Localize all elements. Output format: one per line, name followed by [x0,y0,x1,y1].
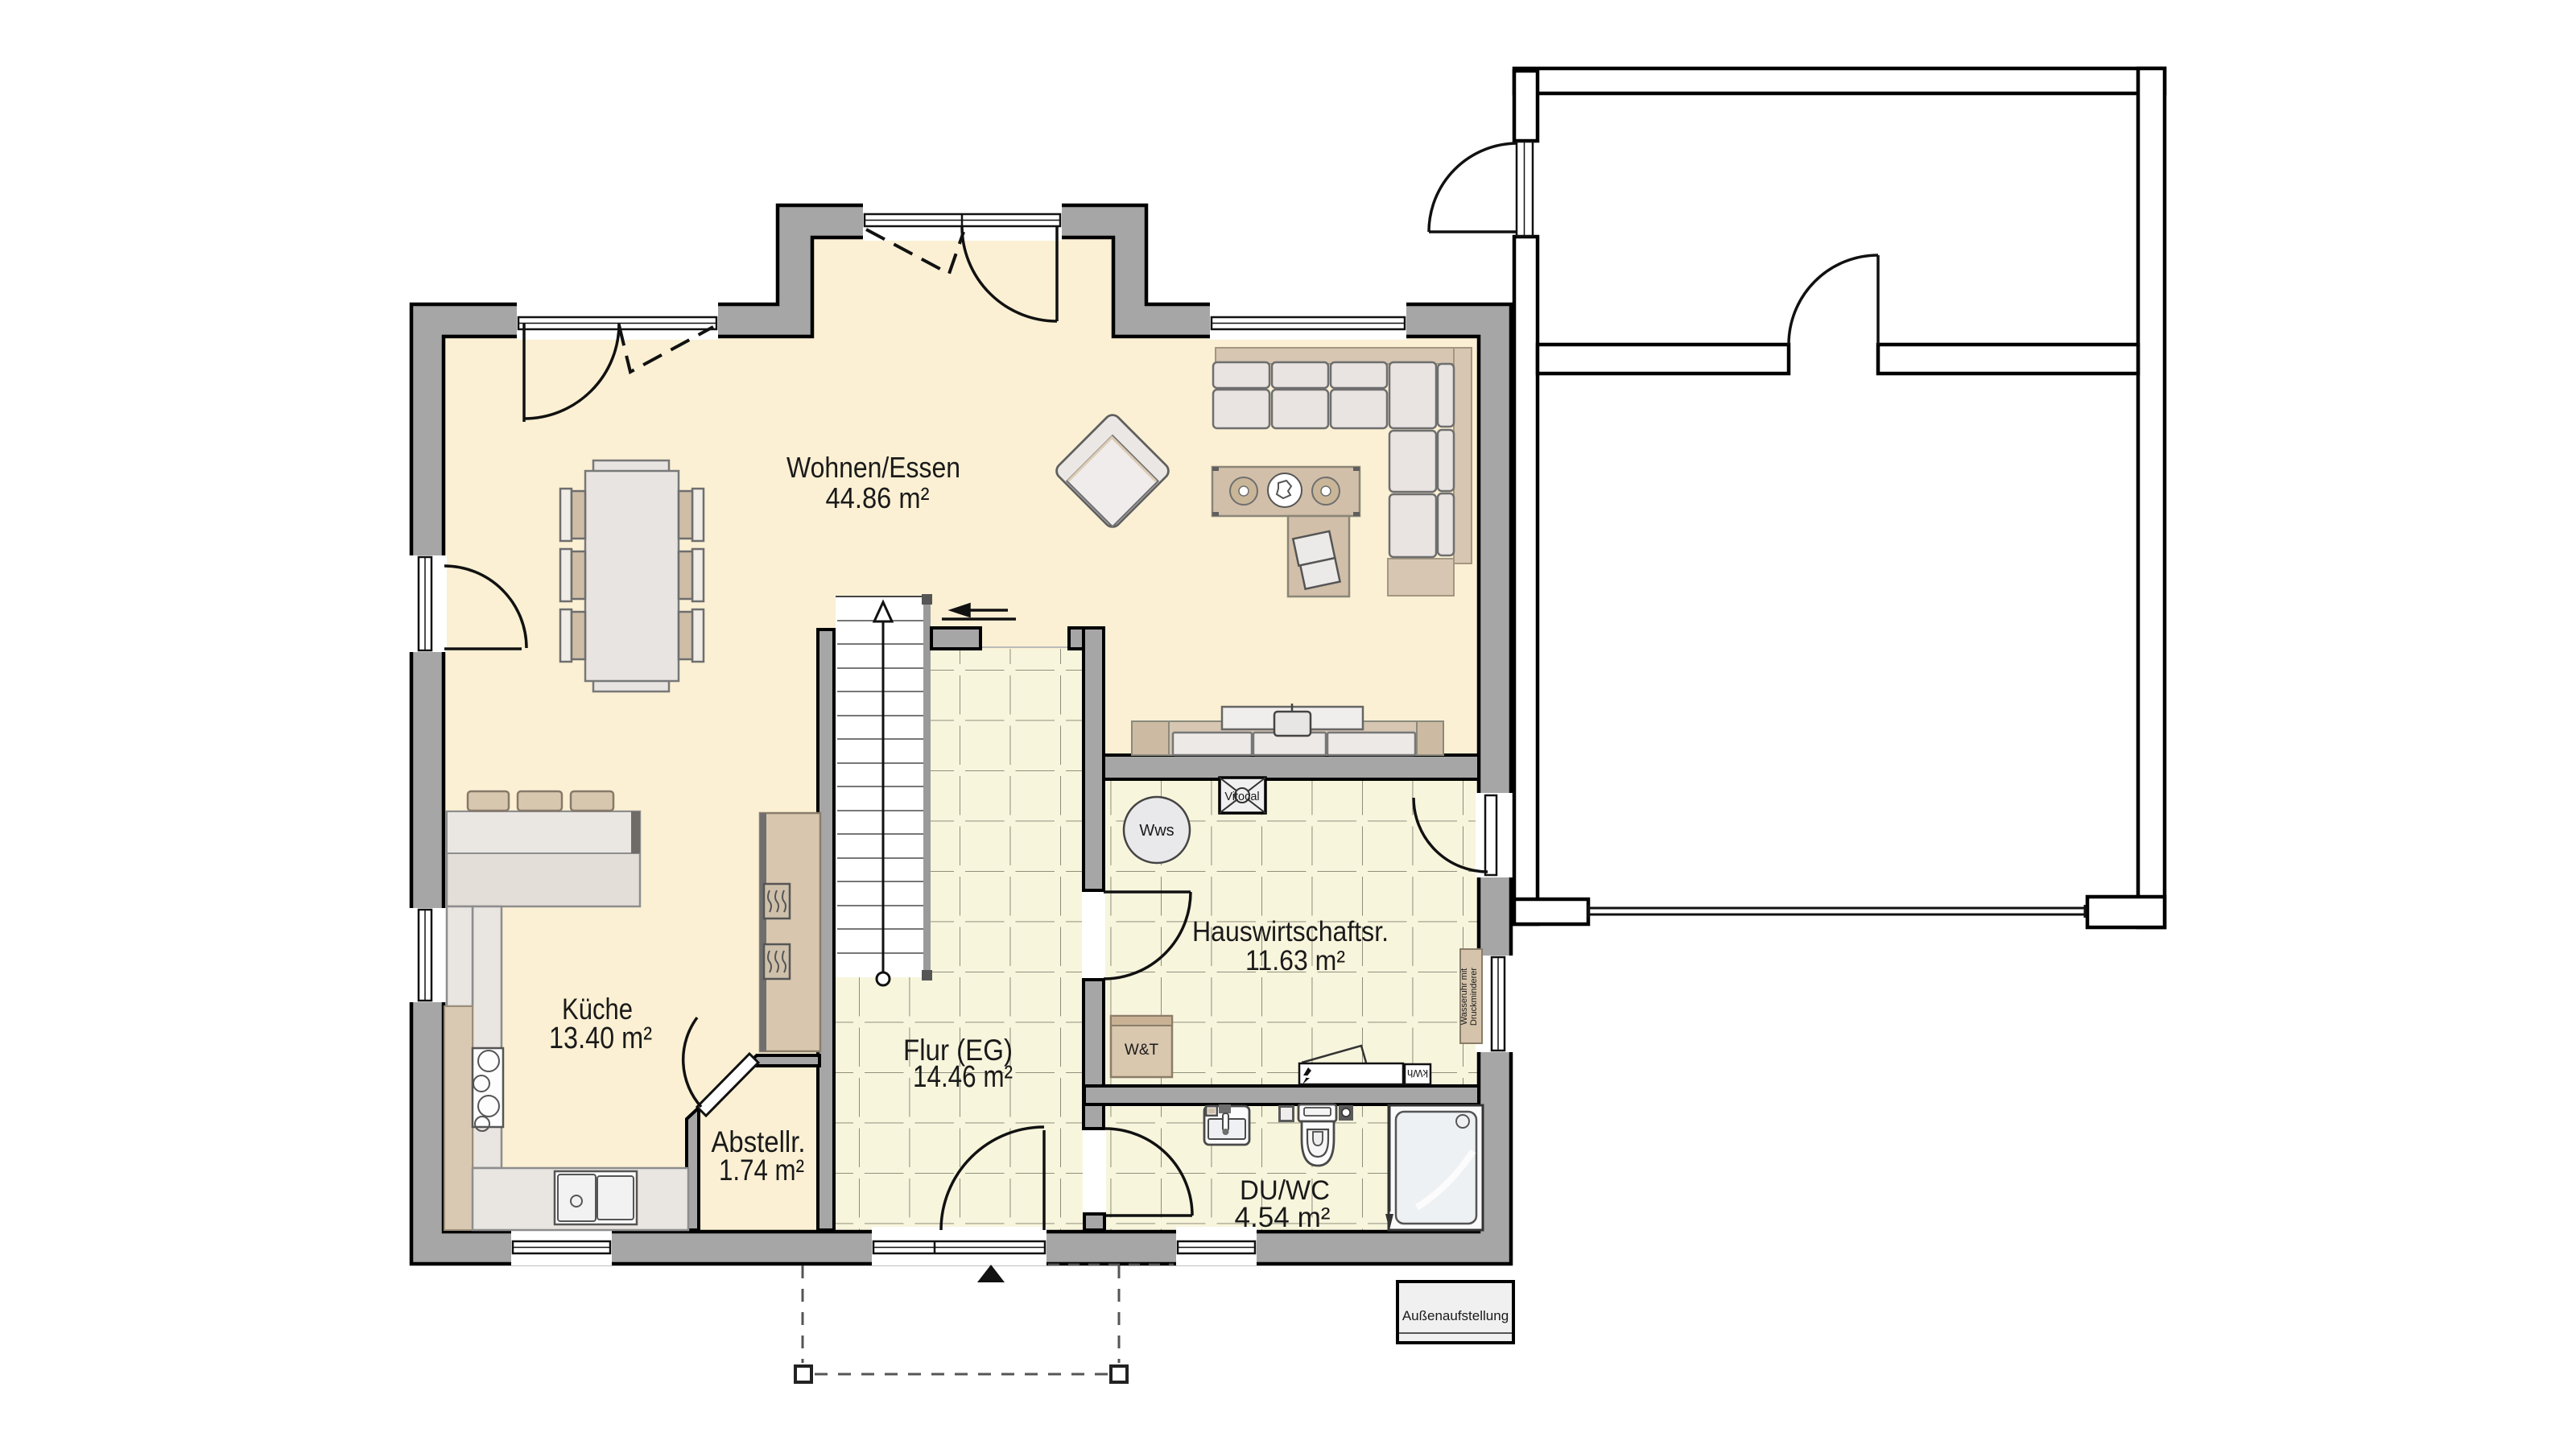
svg-text:14.46 m²: 14.46 m² [913,1060,1013,1094]
svg-text:1.74 m²: 1.74 m² [719,1154,804,1187]
svg-text:Wws: Wws [1139,822,1174,840]
svg-text:44.86 m²: 44.86 m² [826,481,930,514]
svg-text:Wasseruhr mit: Wasseruhr mit [1459,968,1469,1026]
svg-text:Druckminderer: Druckminderer [1469,968,1479,1026]
svg-text:Wohnen/Essen: Wohnen/Essen [786,451,960,484]
svg-text:W&T: W&T [1125,1042,1159,1059]
svg-text:13.40 m²: 13.40 m² [549,1022,652,1055]
svg-text:Hauswirtschaftsr.: Hauswirtschaftsr. [1192,916,1389,947]
svg-text:Außenaufstellung: Außenaufstellung [1402,1308,1509,1323]
svg-text:4.54 m²: 4.54 m² [1235,1202,1331,1233]
svg-text:kWh: kWh [1407,1067,1428,1080]
svg-text:11.63 m²: 11.63 m² [1245,945,1345,976]
svg-text:Küche: Küche [562,993,633,1026]
svg-text:Vitocal: Vitocal [1224,791,1259,803]
